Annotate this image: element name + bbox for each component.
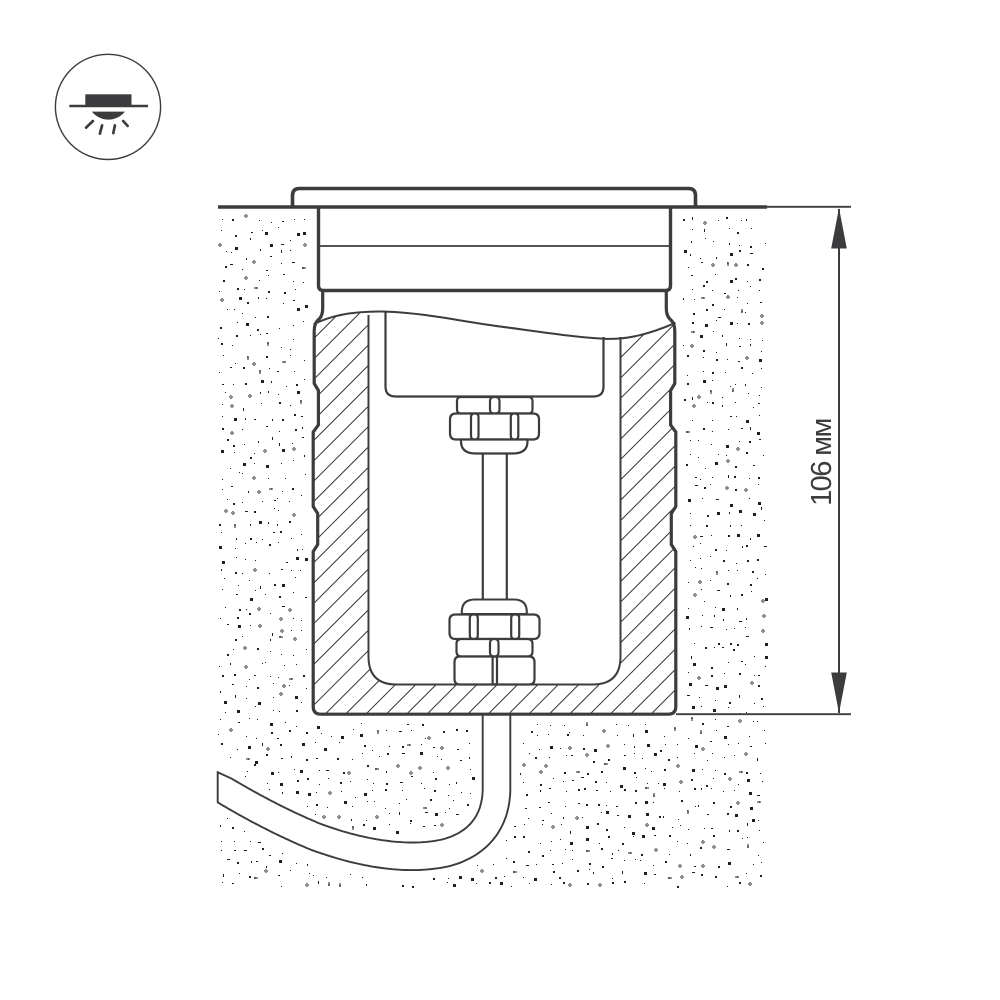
svg-text:106 мм: 106 мм [806, 419, 838, 506]
